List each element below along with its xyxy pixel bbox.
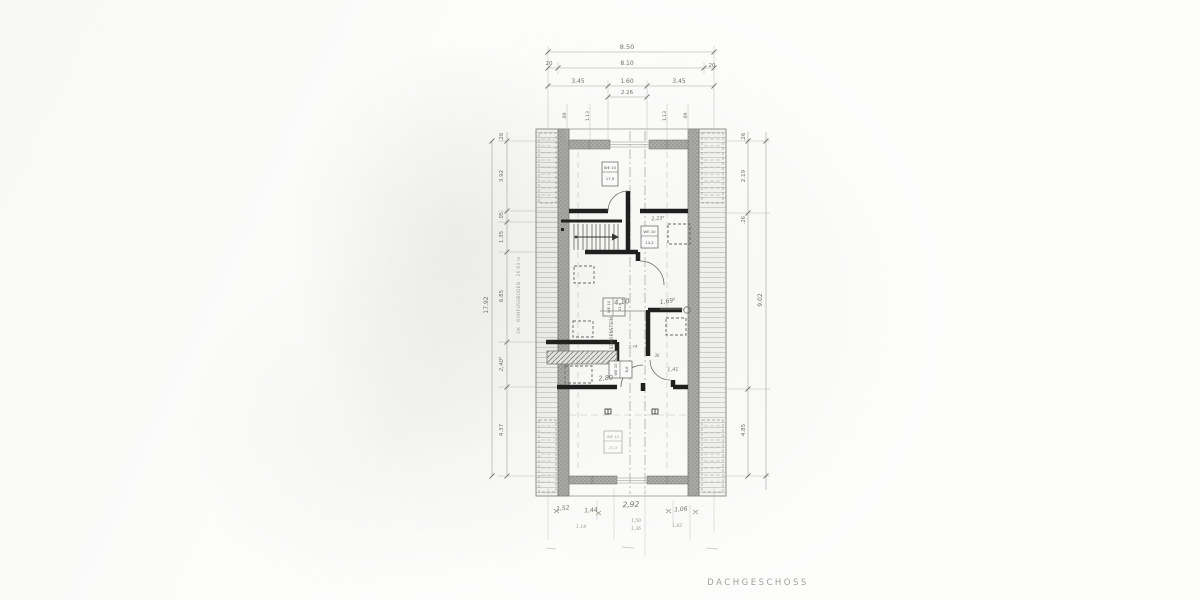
dim-right: .26 xyxy=(741,132,747,141)
dim-window: 1.13 xyxy=(662,111,668,121)
dim-wall-left: 20 xyxy=(546,61,553,67)
dim-left: 6.85 xyxy=(499,289,505,302)
right-roof-band xyxy=(699,129,726,496)
dim-left: .26 xyxy=(499,132,505,141)
stamp-room-area: 8,6 xyxy=(624,366,629,373)
pencil-dim: 1,41 xyxy=(667,367,678,374)
dim-right: 4.85 xyxy=(741,423,747,436)
floor-title: DACHGESCHOSS xyxy=(707,578,809,588)
dimension-chain-right: .26 2.19 .26 4.85 9.02 xyxy=(724,132,770,490)
dim-inner-width: 8.10 xyxy=(620,60,634,67)
dim-bottom-pencil: 1,52 xyxy=(556,504,570,512)
dim-window: .89 xyxy=(683,112,689,119)
right-gable-wall xyxy=(688,129,699,496)
dim-total-width: 8.50 xyxy=(620,43,634,51)
pencil-dim: 7,74 xyxy=(628,344,638,349)
pencil-dim: 4,10 xyxy=(614,297,631,307)
dimension-chain-top: 8.50 20 8.10 20 3.45 1.60 3.45 2.26 .89 … xyxy=(546,43,717,140)
left-gable-wall xyxy=(558,129,569,496)
dim-seg: 2.26 xyxy=(621,90,634,96)
dim-ticks xyxy=(746,139,769,479)
faint-marks xyxy=(546,547,718,549)
staircase xyxy=(561,224,619,250)
dim-seg: 3.45 xyxy=(672,78,686,85)
dim-bottom-pencil: 1,14 xyxy=(576,524,586,530)
dim-right: 2.19 xyxy=(741,169,747,182)
vent-symbols xyxy=(605,409,658,414)
room-stamp: WE 10 21,3 xyxy=(604,431,622,453)
stamp-room-area: 21,3 xyxy=(609,445,618,450)
dim-left: 1.35 xyxy=(499,230,505,243)
dim-bottom-pencil: 2,92 xyxy=(622,500,639,510)
dim-seg: 1.60 xyxy=(620,78,634,85)
pencil-dim: 1,69⁵ xyxy=(659,297,676,306)
dim-bottom-pencil: 1,50 xyxy=(631,518,641,524)
dim-wall-right: 20 xyxy=(709,63,716,69)
bottom-window xyxy=(617,478,647,483)
stamp-room-area: 14,2 xyxy=(645,240,654,245)
dim-right-total: 9.02 xyxy=(757,293,764,307)
room-stamp: WE 10 17,9 xyxy=(602,162,618,186)
pencil-dim: 2,23⁵ xyxy=(651,216,664,223)
post-marker xyxy=(561,228,564,231)
stamp-room-id: WE 10 xyxy=(607,434,620,439)
dim-left-total: 17.92 xyxy=(483,296,490,313)
scanned-floor-plan-page: SCHORNSTEIN WE 10 17,9 WE 1 xyxy=(0,0,1200,600)
chimney-label: SCHORNSTEIN xyxy=(609,317,614,349)
dim-left: .05 xyxy=(499,212,505,220)
roof-bands xyxy=(536,129,726,496)
floor-plan-drawing: SCHORNSTEIN WE 10 17,9 WE 1 xyxy=(0,0,1200,600)
dim-right: .26 xyxy=(741,216,747,224)
stamp-room-area: 17,9 xyxy=(606,176,615,181)
dimension-chain-bottom: 1,52 1,44 2,92 1,06 1,14 1,50 1,36 1,43 xyxy=(546,488,718,556)
stamp-room-id: WE 10 xyxy=(604,165,617,170)
dim-left-pencil: 2,40⁵ xyxy=(498,357,505,371)
stamp-room-id: WE 10 xyxy=(613,363,618,376)
dim-left: 3.92 xyxy=(499,170,505,182)
room-stamp: WE 10 14,2 xyxy=(641,226,658,248)
guide-lines xyxy=(569,131,688,494)
dim-bottom-pencil: 1,43 xyxy=(672,523,682,529)
door-arc-hall xyxy=(640,261,664,285)
stamp-room-id: WE 10 xyxy=(643,229,656,234)
dim-bottom-pencil: 1,44 xyxy=(584,507,598,515)
dim-bottom-pencil: 1,36 xyxy=(631,526,641,532)
door-arc-top-room xyxy=(608,191,628,211)
pencil-dim: 36 xyxy=(654,353,660,358)
dim-window: .89 xyxy=(562,112,568,119)
dim-window: 1.13 xyxy=(585,111,591,121)
dim-bottom-pencil: 1,06 xyxy=(674,506,688,514)
dim-left: 4.37 xyxy=(499,423,505,436)
datum-note: OK · ROHFUSSBODEN · 26,63 m xyxy=(516,256,521,333)
pencil-dim: 2,80 xyxy=(598,373,613,382)
dim-seg: 3.45 xyxy=(571,78,585,85)
chimney-block xyxy=(547,351,617,364)
top-window xyxy=(610,142,649,147)
